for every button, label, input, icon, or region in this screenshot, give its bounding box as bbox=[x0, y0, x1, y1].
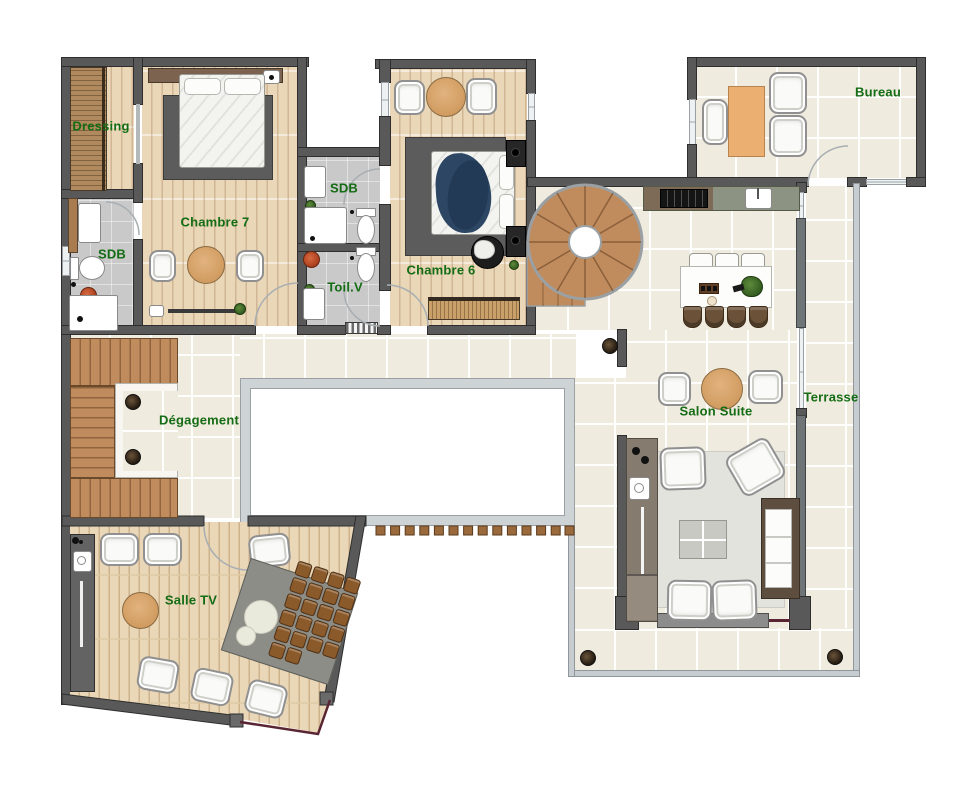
spotlight-stairwell-a bbox=[125, 394, 141, 410]
sink-basin-west bbox=[634, 483, 644, 493]
plant-chambre6 bbox=[509, 260, 519, 270]
dining-chair-c bbox=[727, 306, 746, 328]
door-arc-sdb-left bbox=[106, 202, 139, 235]
throw-chambre6 bbox=[474, 240, 495, 259]
bar-fridge-handle bbox=[80, 581, 83, 647]
pillow-chambre7-b bbox=[224, 78, 261, 95]
bench-cushions bbox=[765, 509, 792, 588]
guest-chair-bureau-b bbox=[769, 115, 807, 157]
fridge-handle-west bbox=[641, 507, 644, 575]
salletv-chair-top-b bbox=[143, 533, 182, 566]
table-chambre6 bbox=[426, 77, 466, 117]
desk-bureau bbox=[728, 86, 765, 157]
door-arc-bureau bbox=[808, 146, 848, 186]
guest-chair-bureau-a bbox=[769, 72, 807, 114]
label-chambre7: Chambre 7 bbox=[181, 215, 250, 230]
toilet-bowl-sdb bbox=[357, 215, 375, 244]
bar-faucet-dot-b bbox=[79, 540, 83, 544]
label-salon-suite: Salon Suite bbox=[680, 404, 753, 419]
stairs-upper-flight bbox=[70, 338, 178, 386]
wardrobe-chambre6 bbox=[428, 297, 520, 320]
label-terrasse: Terrasse bbox=[804, 390, 859, 405]
flush-button-sdb bbox=[350, 210, 354, 214]
salon-armchair-se bbox=[711, 579, 757, 622]
hob-dot-a bbox=[632, 447, 640, 455]
shower-sdbleft bbox=[69, 295, 118, 331]
ottoman-salletv bbox=[122, 592, 159, 629]
label-salle-tv: Salle TV bbox=[165, 593, 217, 608]
armchair-chambre7-left bbox=[149, 250, 176, 282]
laundry-basket-toilv bbox=[303, 251, 320, 268]
pergola-dashed-line bbox=[376, 526, 574, 535]
label-toilv: Toil.V bbox=[327, 280, 363, 295]
plant-chambre7 bbox=[234, 303, 246, 315]
dining-chair-d bbox=[749, 306, 768, 328]
tv-console-chambre7 bbox=[168, 309, 240, 313]
stairs-left-flight bbox=[70, 386, 115, 478]
lamp-chambre7 bbox=[269, 75, 274, 80]
vanity-cabinet-sdbleft bbox=[68, 198, 78, 253]
dining-chair-a bbox=[683, 306, 702, 328]
door-arc-chambre7 bbox=[255, 283, 298, 326]
salon-suite-chair-left bbox=[658, 372, 691, 406]
armchair-chambre6-left bbox=[394, 80, 425, 115]
salletv-chair-bottom-a bbox=[135, 655, 180, 695]
tv-box-chambre7 bbox=[149, 305, 164, 317]
dining-chair-b bbox=[705, 306, 724, 328]
label-dressing: Dressing bbox=[72, 119, 129, 134]
kitchen-faucet bbox=[757, 188, 759, 199]
door-arc-toilv bbox=[344, 290, 380, 326]
sink-toilv bbox=[303, 288, 325, 320]
stairs-lower-flight bbox=[70, 478, 178, 518]
spotlight-terrace-b bbox=[827, 649, 843, 665]
salon-suite-chair-right bbox=[748, 370, 783, 404]
glass-post-salletv-a bbox=[230, 714, 243, 727]
speaker-dot-a bbox=[511, 148, 520, 157]
salletv-chair-top-a bbox=[100, 533, 139, 566]
desk-chair-bureau bbox=[702, 99, 728, 145]
bar-faucet-dots bbox=[72, 537, 79, 544]
flush-button-toilv bbox=[350, 256, 354, 260]
label-bureau: Bureau bbox=[855, 85, 901, 100]
pillow-chambre7-a bbox=[184, 78, 221, 95]
salon-armchair-sw bbox=[667, 580, 713, 622]
speaker-dot-b bbox=[511, 236, 520, 245]
salle-tv-wall-top-b bbox=[248, 516, 366, 526]
coffee-table bbox=[679, 520, 727, 559]
bar-sink-basin bbox=[77, 556, 86, 565]
hob-dot-b bbox=[641, 456, 649, 464]
spotlight-corridor bbox=[602, 338, 618, 354]
salon-armchair-nw bbox=[659, 446, 706, 491]
stove bbox=[660, 189, 708, 208]
tray-slot-a bbox=[701, 286, 705, 291]
tray-slot-b bbox=[707, 286, 711, 291]
dining-bowl bbox=[707, 296, 717, 306]
dining-centerpiece-plant bbox=[741, 276, 763, 297]
tray-slot-c bbox=[713, 286, 717, 291]
table-chambre7 bbox=[187, 246, 225, 284]
spotlight-terrace-a bbox=[580, 650, 596, 666]
spiral-staircase bbox=[527, 185, 642, 306]
toilet-bowl-toilv bbox=[357, 253, 375, 282]
label-degagement: Dégagement bbox=[159, 413, 239, 428]
label-chambre6: Chambre 6 bbox=[407, 263, 476, 278]
door-arc-chambre6 bbox=[387, 285, 428, 326]
flush-button-sdbleft bbox=[71, 282, 76, 287]
sink-sdbleft bbox=[78, 203, 101, 243]
armchair-chambre7-right bbox=[236, 250, 264, 282]
glass-post-salletv-b bbox=[320, 692, 333, 705]
armchair-chambre6-right bbox=[466, 78, 497, 115]
label-sdb-left: SDB bbox=[98, 247, 126, 262]
toilet-tank-sdbleft bbox=[70, 257, 79, 280]
bathtub-drain-sdb bbox=[310, 236, 315, 241]
shower-drain-sdbleft bbox=[77, 316, 83, 322]
beanbag-small bbox=[236, 626, 256, 646]
pillow-chambre6-b bbox=[499, 194, 514, 229]
floor-plan: Dressing Chambre 7 SDB SDB Toil.V Chambr… bbox=[0, 0, 959, 800]
spotlight-stairwell-b bbox=[125, 449, 141, 465]
sink-sdb bbox=[304, 166, 326, 198]
label-sdb: SDB bbox=[330, 181, 358, 196]
cabinet-lower-west bbox=[627, 574, 657, 620]
